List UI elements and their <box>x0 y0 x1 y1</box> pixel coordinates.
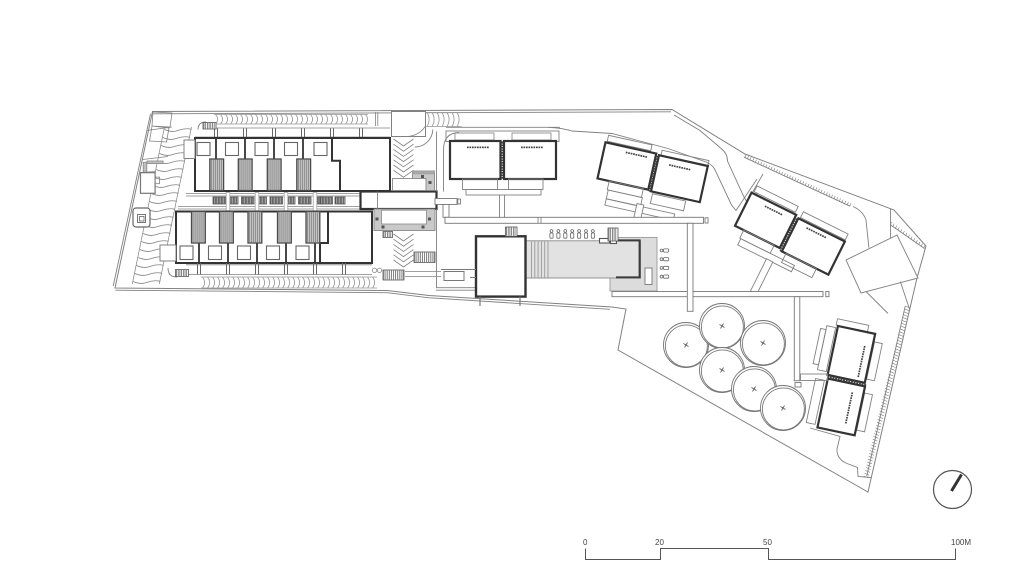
svg-text:0: 0 <box>583 538 588 547</box>
svg-text:50: 50 <box>763 538 772 547</box>
svg-text:20: 20 <box>655 538 664 547</box>
svg-text:100M: 100M <box>951 538 971 547</box>
